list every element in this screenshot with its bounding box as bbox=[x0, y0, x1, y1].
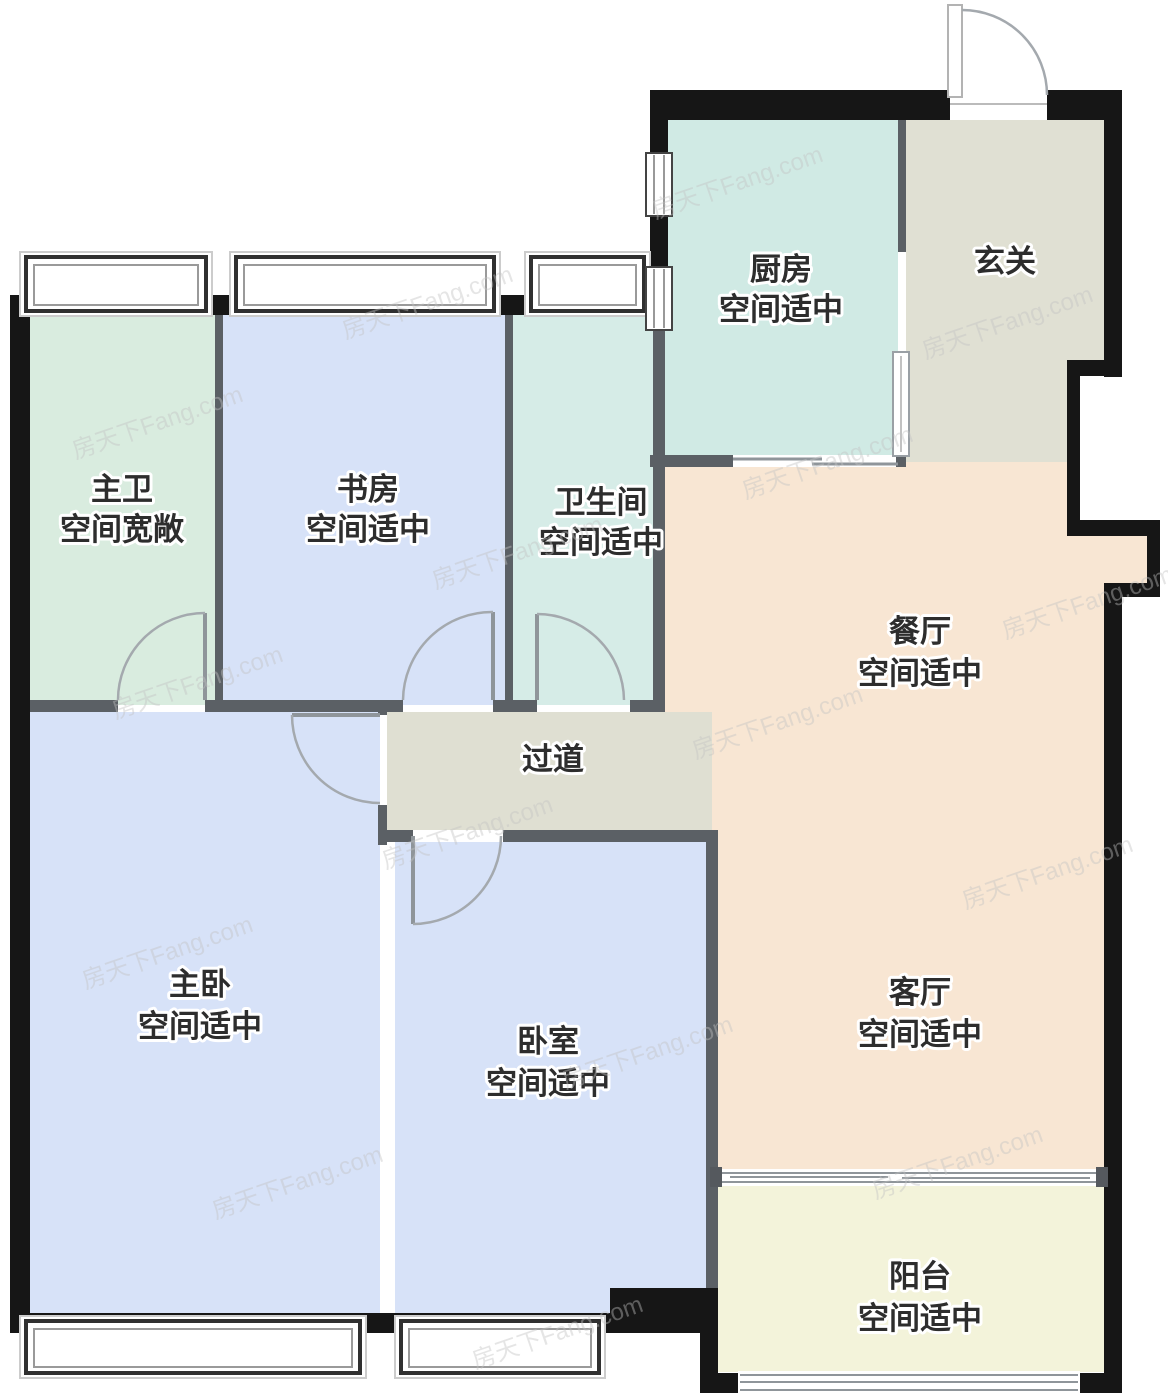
label-living-note: 空间适中 bbox=[858, 1017, 982, 1052]
label-balcony-note: 空间适中 bbox=[858, 1301, 982, 1336]
label-bathroom-name: 卫生间 bbox=[555, 485, 648, 520]
label-masterbedroom-note: 空间适中 bbox=[138, 1009, 262, 1044]
label-hallway-name: 过道 bbox=[522, 742, 584, 777]
label-study-name: 书房 bbox=[337, 472, 399, 507]
label-kitchen-name: 厨房 bbox=[750, 252, 812, 287]
window-master-bedroom bbox=[20, 1316, 366, 1378]
window-balcony bbox=[738, 1371, 1080, 1395]
window-masterbath bbox=[20, 252, 212, 316]
entrance-door-arc bbox=[962, 10, 1047, 95]
wall-step bbox=[1067, 520, 1160, 536]
wall-right-main bbox=[1104, 583, 1122, 1393]
label-masterbedroom-name: 主卧 bbox=[169, 967, 231, 1002]
label-masterbath-note: 空间宽敞 bbox=[60, 512, 185, 547]
entrance-door-leaf bbox=[948, 5, 962, 97]
entrance-door bbox=[948, 5, 1047, 104]
wall-segment bbox=[493, 700, 537, 712]
wall-segment bbox=[30, 700, 118, 712]
wall-masterbath-study bbox=[215, 315, 223, 707]
wall-segment bbox=[378, 805, 387, 845]
wall-segment bbox=[650, 455, 733, 467]
wall-kitchen-entry bbox=[898, 120, 906, 252]
label-dining-note: 空间适中 bbox=[858, 656, 982, 691]
wall-segment bbox=[378, 700, 387, 715]
wall-segment bbox=[205, 700, 403, 712]
label-kitchen-note: 空间适中 bbox=[719, 292, 843, 327]
wall-hall-bedroom bbox=[503, 830, 718, 842]
wall-right-mid bbox=[1067, 360, 1080, 536]
room-master-bath bbox=[30, 315, 215, 705]
label-balcony-name: 阳台 bbox=[889, 1259, 951, 1294]
wall-top-a bbox=[650, 90, 950, 120]
floorplan-canvas: 厨房 空间适中 玄关 主卫 空间宽敞 书房 空间适中 卫生间 空间适中 餐厅 空… bbox=[0, 0, 1168, 1400]
wall-study-bathroom bbox=[505, 315, 513, 707]
wall-bedroom-living bbox=[706, 842, 718, 1330]
label-dining-name: 餐厅 bbox=[889, 614, 951, 649]
label-living-name: 客厅 bbox=[889, 975, 951, 1010]
room-dining-living bbox=[665, 462, 1147, 1170]
wall-bathroom-dining bbox=[653, 315, 665, 712]
label-bedroom-name: 卧室 bbox=[517, 1024, 579, 1059]
label-masterbath-name: 主卫 bbox=[91, 472, 153, 507]
window-bathroom bbox=[525, 252, 650, 316]
window-kitchen-side bbox=[646, 267, 672, 330]
label-study-note: 空间适中 bbox=[306, 512, 430, 547]
floorplan-svg: 厨房 空间适中 玄关 主卫 空间宽敞 书房 空间适中 卫生间 空间适中 餐厅 空… bbox=[0, 0, 1168, 1400]
wall-entry-right bbox=[1104, 90, 1122, 377]
label-entry-name: 玄关 bbox=[974, 244, 1036, 279]
wall-left bbox=[10, 295, 30, 1333]
